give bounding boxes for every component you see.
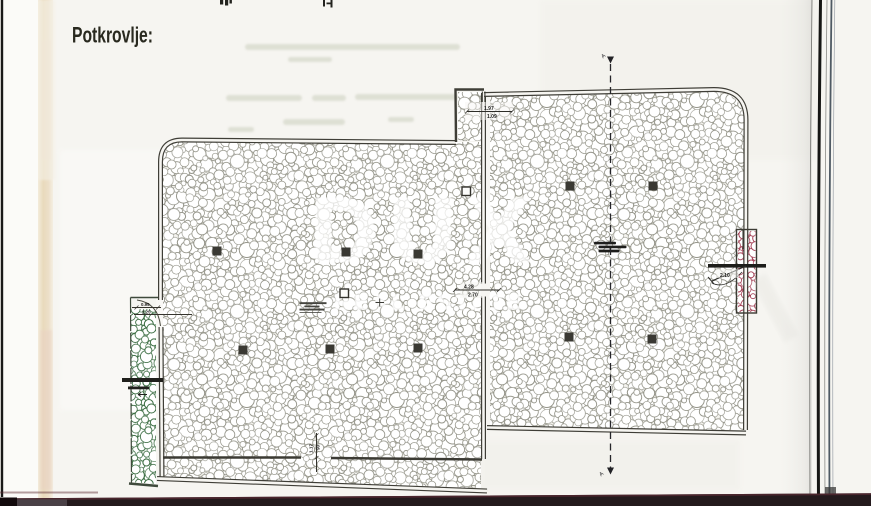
svg-text:2.10: 2.10 (720, 273, 730, 279)
svg-text:REAL ESTATE: REAL ESTATE (335, 292, 526, 314)
svg-text:90: 90 (316, 444, 321, 450)
svg-text:1.17: 1.17 (309, 444, 314, 453)
svg-text:2.25: 2.25 (142, 310, 151, 315)
svg-text:1.97: 1.97 (484, 106, 494, 112)
svg-text:DUX: DUX (311, 181, 543, 281)
svg-text:2.70: 2.70 (468, 293, 478, 299)
svg-text:1.09: 1.09 (487, 114, 497, 120)
svg-text:4.28: 4.28 (464, 285, 474, 291)
svg-text:Potkrovlje:: Potkrovlje: (72, 23, 153, 48)
svg-text:0.95: 0.95 (141, 302, 150, 307)
